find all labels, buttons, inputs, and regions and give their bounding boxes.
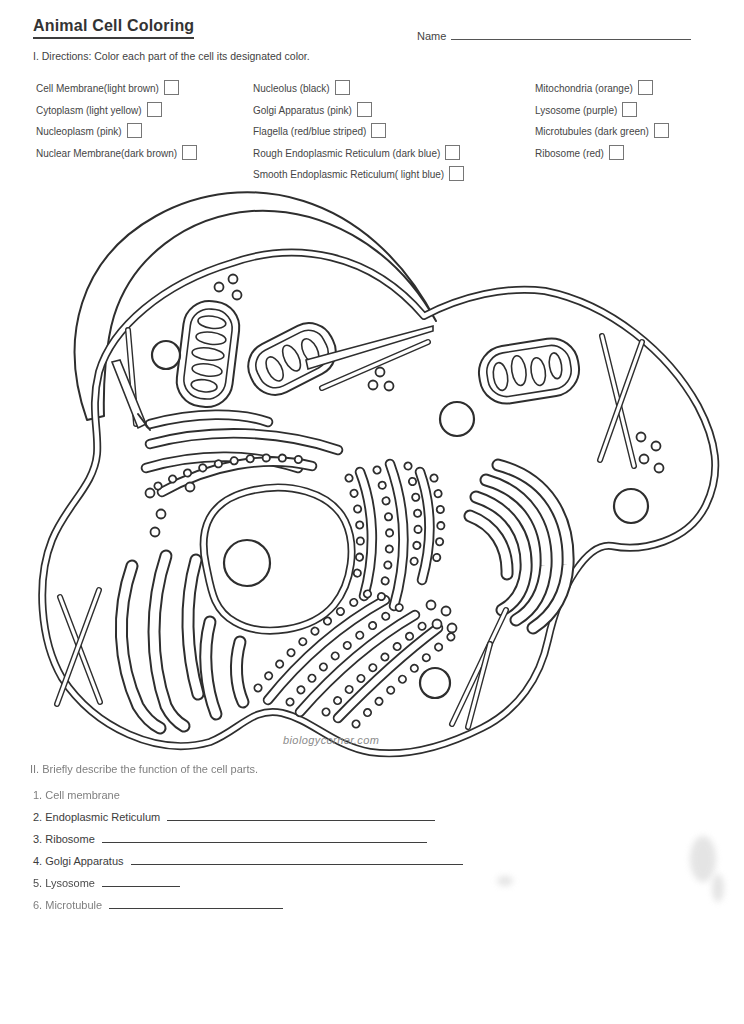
question-number: 3.: [33, 833, 42, 845]
question-label: Golgi Apparatus: [45, 855, 123, 867]
key-item-mitochondria: Mitochondria (orange): [535, 80, 740, 94]
name-input-line[interactable]: [451, 28, 691, 40]
key-checkbox[interactable]: [147, 102, 162, 117]
question-label: Ribosome: [45, 833, 95, 845]
key-checkbox[interactable]: [335, 80, 350, 95]
nucleus: [204, 488, 352, 631]
key-label: Lysosome (purple): [535, 105, 617, 116]
question-lysosome: 5. Lysosome: [33, 877, 463, 890]
key-item-rough-er: Rough Endoplasmic Reticulum (dark blue): [253, 145, 533, 159]
question-endoplasmic-reticulum: 2. Endoplasmic Reticulum: [33, 811, 463, 824]
answer-line[interactable]: [131, 855, 463, 865]
key-checkbox[interactable]: [127, 123, 142, 138]
page-title: Animal Cell Coloring: [33, 17, 194, 39]
question-microtubule: 6. Microtubule: [33, 899, 463, 912]
mitochondrion-3: [475, 335, 583, 408]
question-label: Lysosome: [45, 877, 95, 889]
key-label: Nuclear Membrane(dark brown): [36, 148, 177, 159]
question-number: 4.: [33, 855, 42, 867]
color-key-column-3: Mitochondria (orange) Lysosome (purple) …: [535, 80, 740, 166]
key-checkbox[interactable]: [622, 102, 637, 117]
question-number: 5.: [33, 877, 42, 889]
scan-smudge: [690, 836, 716, 882]
key-item-golgi-apparatus: Golgi Apparatus (pink): [253, 102, 533, 116]
key-label: Rough Endoplasmic Reticulum (dark blue): [253, 148, 440, 159]
directions-text: I. Directions: Color each part of the ce…: [33, 50, 310, 62]
key-item-smooth-er: Smooth Endoplasmic Reticulum( light blue…: [253, 166, 533, 180]
key-item-microtubules: Microtubules (dark green): [535, 123, 740, 137]
key-checkbox[interactable]: [638, 80, 653, 95]
name-field-row: Name: [417, 28, 691, 42]
question-number: 2.: [33, 811, 42, 823]
answer-line[interactable]: [109, 899, 283, 909]
key-item-cytoplasm: Cytoplasm (light yellow): [36, 102, 252, 116]
color-key-column-1: Cell Membrane(light brown) Cytoplasm (li…: [36, 80, 252, 166]
key-item-lysosome: Lysosome (purple): [535, 102, 740, 116]
question-label: Cell membrane: [45, 789, 120, 801]
section-2-heading: II. Briefly describe the function of the…: [30, 763, 258, 775]
key-checkbox[interactable]: [609, 145, 624, 160]
key-checkbox[interactable]: [164, 80, 179, 95]
key-checkbox[interactable]: [449, 166, 464, 181]
question-ribosome: 3. Ribosome: [33, 833, 463, 846]
key-checkbox[interactable]: [357, 102, 372, 117]
key-label: Nucleoplasm (pink): [36, 126, 122, 137]
key-checkbox[interactable]: [371, 123, 386, 138]
key-label: Golgi Apparatus (pink): [253, 105, 352, 116]
key-label: Cell Membrane(light brown): [36, 83, 159, 94]
key-checkbox[interactable]: [654, 123, 669, 138]
key-checkbox[interactable]: [445, 145, 460, 160]
membranous-sacs-left: [121, 556, 243, 728]
name-label: Name: [417, 30, 446, 42]
watermark: biologycorner.com: [283, 734, 379, 746]
scan-smudge: [712, 874, 724, 902]
key-label: Cytoplasm (light yellow): [36, 105, 142, 116]
animal-cell-diagram: biologycorner.com: [0, 190, 744, 770]
key-item-nuclear-membrane: Nuclear Membrane(dark brown): [36, 145, 252, 159]
question-golgi-apparatus: 4. Golgi Apparatus: [33, 855, 463, 868]
function-questions: 1. Cell membrane 2. Endoplasmic Reticulu…: [33, 789, 463, 921]
color-key: Cell Membrane(light brown) Cytoplasm (li…: [0, 80, 744, 190]
question-label: Endoplasmic Reticulum: [45, 811, 160, 823]
key-item-cell-membrane: Cell Membrane(light brown): [36, 80, 252, 94]
scan-smudge: [497, 876, 513, 886]
key-label: Microtubules (dark green): [535, 126, 649, 137]
key-item-ribosome: Ribosome (red): [535, 145, 740, 159]
key-item-flagella: Flagella (red/blue striped): [253, 123, 533, 137]
question-number: 1.: [33, 789, 42, 801]
key-label: Flagella (red/blue striped): [253, 126, 366, 137]
worksheet-page: Animal Cell Coloring Name I. Directions:…: [0, 0, 744, 1024]
key-label: Smooth Endoplasmic Reticulum( light blue…: [253, 169, 444, 180]
color-key-column-2: Nucleolus (black) Golgi Apparatus (pink)…: [253, 80, 533, 188]
answer-line[interactable]: [102, 833, 427, 843]
key-checkbox[interactable]: [182, 145, 197, 160]
key-label: Nucleolus (black): [253, 83, 330, 94]
nucleolus: [224, 540, 270, 586]
question-cell-membrane: 1. Cell membrane: [33, 789, 463, 802]
question-number: 6.: [33, 899, 42, 911]
answer-line[interactable]: [167, 811, 435, 821]
answer-line[interactable]: [102, 877, 180, 887]
mitochondrion-1: [174, 298, 243, 410]
key-item-nucleoplasm: Nucleoplasm (pink): [36, 123, 252, 137]
golgi-apparatus: [470, 465, 568, 628]
key-item-nucleolus: Nucleolus (black): [253, 80, 533, 94]
question-label: Microtubule: [45, 899, 102, 911]
key-label: Mitochondria (orange): [535, 83, 633, 94]
key-label: Ribosome (red): [535, 148, 604, 159]
